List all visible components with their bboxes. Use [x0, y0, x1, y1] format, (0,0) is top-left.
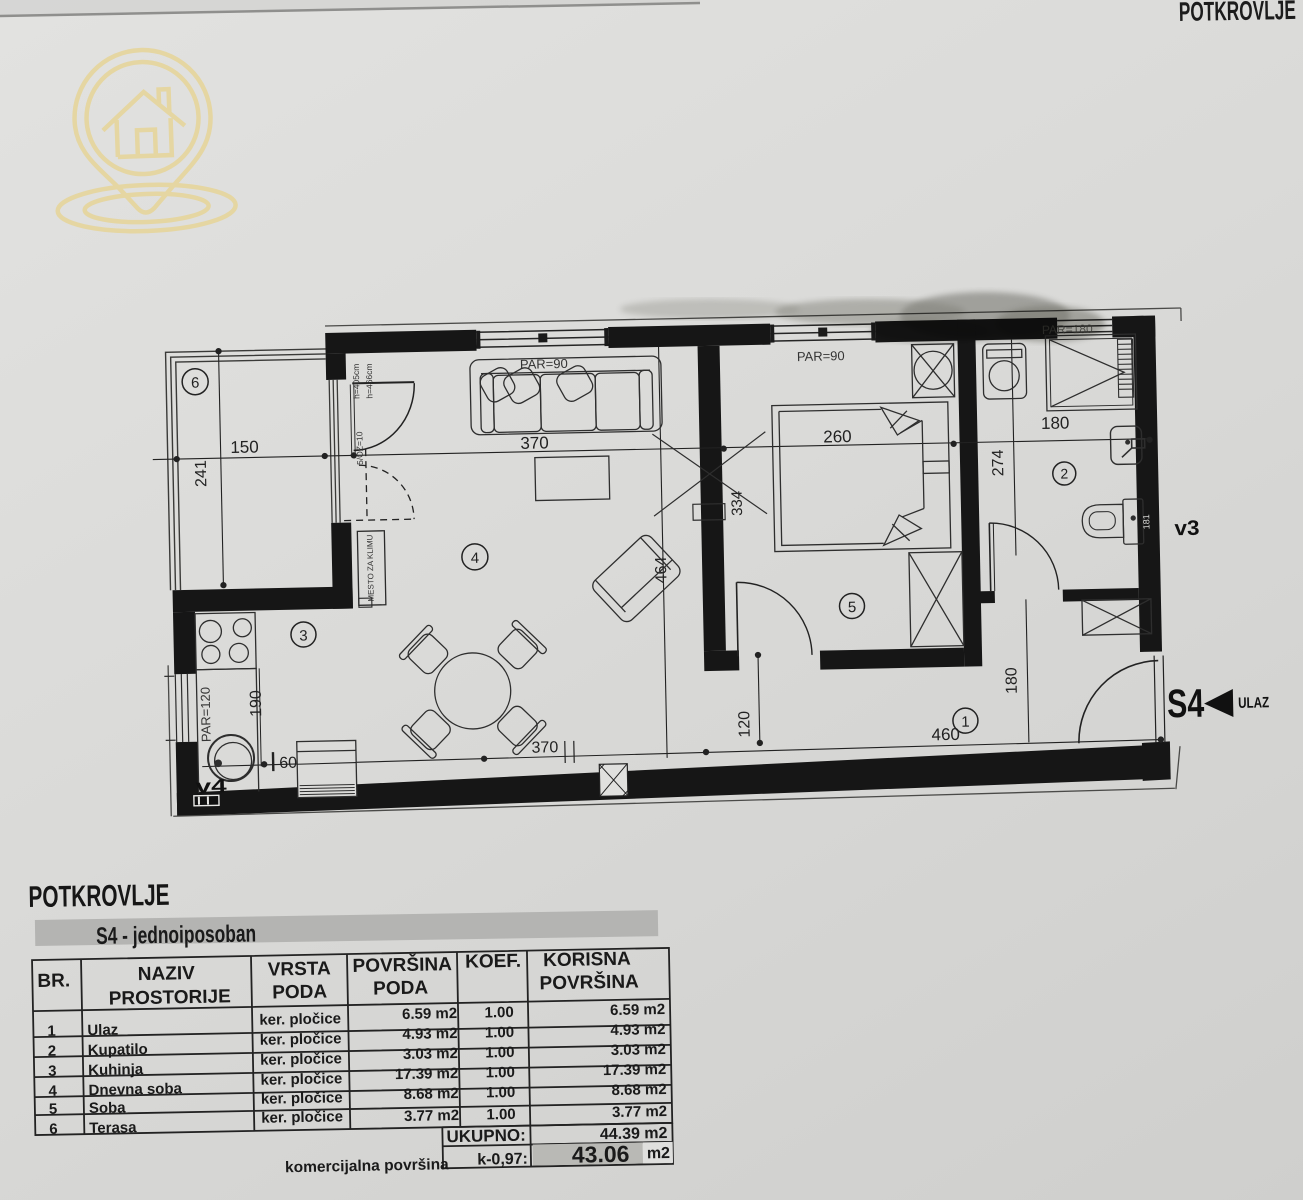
svg-text:UKUPNO:: UKUPNO:: [446, 1126, 526, 1147]
svg-text:PROSTORIJE: PROSTORIJE: [109, 986, 232, 1009]
svg-text:4.93 m2: 4.93 m2: [402, 1025, 457, 1043]
svg-text:POVRŠINA: POVRŠINA: [352, 953, 452, 977]
svg-text:6.59 m2: 6.59 m2: [402, 1005, 457, 1023]
svg-text:Kupatilo: Kupatilo: [88, 1041, 148, 1059]
svg-text:6: 6: [49, 1121, 58, 1138]
svg-text:Ulaz: Ulaz: [87, 1021, 118, 1039]
svg-text:1: 1: [47, 1023, 56, 1040]
svg-text:VRSTA: VRSTA: [268, 958, 332, 980]
svg-text:PAR=120: PAR=120: [198, 687, 214, 742]
svg-text:260: 260: [823, 427, 852, 447]
svg-text:180: 180: [1003, 667, 1021, 694]
svg-text:17.39 m2: 17.39 m2: [395, 1065, 459, 1083]
svg-text:ker. pločice: ker. pločice: [260, 1070, 342, 1089]
svg-text:1.00: 1.00: [485, 1024, 515, 1042]
svg-text:POVRŠINA: POVRŠINA: [539, 970, 639, 994]
svg-text:3.77 m2: 3.77 m2: [404, 1107, 459, 1125]
svg-text:PAR=90: PAR=90: [797, 348, 845, 364]
svg-text:S4: S4: [1167, 682, 1205, 727]
svg-text:3.03 m2: 3.03 m2: [611, 1041, 666, 1059]
svg-text:1: 1: [961, 714, 970, 731]
svg-text:150: 150: [230, 437, 259, 457]
svg-text:PODA: PODA: [373, 978, 429, 1000]
svg-text:4: 4: [471, 550, 480, 567]
svg-text:274: 274: [990, 449, 1008, 476]
svg-text:1.00: 1.00: [485, 1044, 515, 1062]
svg-text:m2: m2: [647, 1145, 671, 1162]
svg-text:3: 3: [48, 1063, 57, 1080]
svg-text:ker. pločice: ker. pločice: [261, 1089, 343, 1108]
svg-text:PODA: PODA: [272, 981, 328, 1003]
svg-text:Dnevna soba: Dnevna soba: [88, 1080, 182, 1099]
svg-text:2: 2: [48, 1043, 57, 1060]
svg-text:1.00: 1.00: [486, 1084, 516, 1102]
svg-text:Terasa: Terasa: [89, 1119, 137, 1137]
svg-text:3.77 m2: 3.77 m2: [612, 1103, 667, 1121]
svg-text:120: 120: [736, 711, 754, 738]
svg-text:1.00: 1.00: [484, 1004, 514, 1022]
svg-text:8.68 m2: 8.68 m2: [403, 1085, 458, 1103]
svg-text:ker. pločice: ker. pločice: [260, 1030, 342, 1049]
svg-text:334: 334: [729, 491, 747, 516]
svg-text:ker. pločice: ker. pločice: [259, 1010, 341, 1029]
svg-text:ker. pločice: ker. pločice: [260, 1050, 342, 1069]
svg-text:ker. pločice: ker. pločice: [261, 1108, 343, 1127]
svg-text:6: 6: [191, 375, 200, 392]
svg-text:1.00: 1.00: [486, 1064, 516, 1082]
svg-text:BR.: BR.: [37, 970, 70, 992]
svg-text:v4: v4: [195, 776, 227, 798]
svg-text:6.59 m2: 6.59 m2: [610, 1001, 665, 1019]
svg-text:43.06: 43.06: [572, 1141, 630, 1168]
svg-text:h=405cm: h=405cm: [351, 364, 362, 399]
svg-text:180: 180: [1041, 413, 1070, 433]
svg-text:h=466cm: h=466cm: [364, 363, 375, 398]
svg-text:2: 2: [1060, 465, 1068, 481]
svg-text:181: 181: [1141, 514, 1151, 529]
svg-text:4: 4: [48, 1083, 57, 1100]
svg-text:KOEF.: KOEF.: [465, 951, 521, 973]
svg-text:Kuhinja: Kuhinja: [88, 1061, 144, 1079]
svg-text:3: 3: [299, 627, 308, 644]
svg-text:komercijalna površina: komercijalna površina: [285, 1156, 449, 1176]
svg-text:370: 370: [531, 739, 558, 757]
svg-text:8.68 m2: 8.68 m2: [611, 1081, 666, 1099]
svg-text:190: 190: [248, 690, 266, 717]
svg-text:60: 60: [279, 755, 297, 772]
svg-text:ULAZ: ULAZ: [1238, 694, 1269, 712]
svg-text:POTKROVLJE: POTKROVLJE: [1179, 0, 1297, 27]
svg-text:5: 5: [848, 599, 857, 616]
svg-text:370: 370: [520, 433, 549, 453]
svg-text:17.39 m2: 17.39 m2: [603, 1061, 667, 1079]
svg-text:1.00: 1.00: [486, 1106, 516, 1124]
svg-text:241: 241: [193, 460, 211, 487]
svg-text:S4 - jednoiposoban: S4 - jednoiposoban: [96, 920, 256, 950]
svg-text:k-0,97:: k-0,97:: [477, 1151, 528, 1169]
svg-text:3.03 m2: 3.03 m2: [403, 1045, 458, 1063]
svg-text:5: 5: [49, 1101, 58, 1118]
svg-text:KORISNA: KORISNA: [543, 949, 631, 972]
svg-text:Soba: Soba: [89, 1099, 127, 1117]
svg-text:4.93 m2: 4.93 m2: [610, 1021, 665, 1039]
svg-text:v3: v3: [1174, 517, 1199, 541]
svg-text:MESTO ZA KLIMU: MESTO ZA KLIMU: [365, 534, 375, 601]
svg-text:NAZIV: NAZIV: [138, 963, 196, 985]
svg-text:POTKROVLJE: POTKROVLJE: [28, 879, 170, 914]
svg-text:5/OZ=10: 5/OZ=10: [354, 431, 365, 465]
